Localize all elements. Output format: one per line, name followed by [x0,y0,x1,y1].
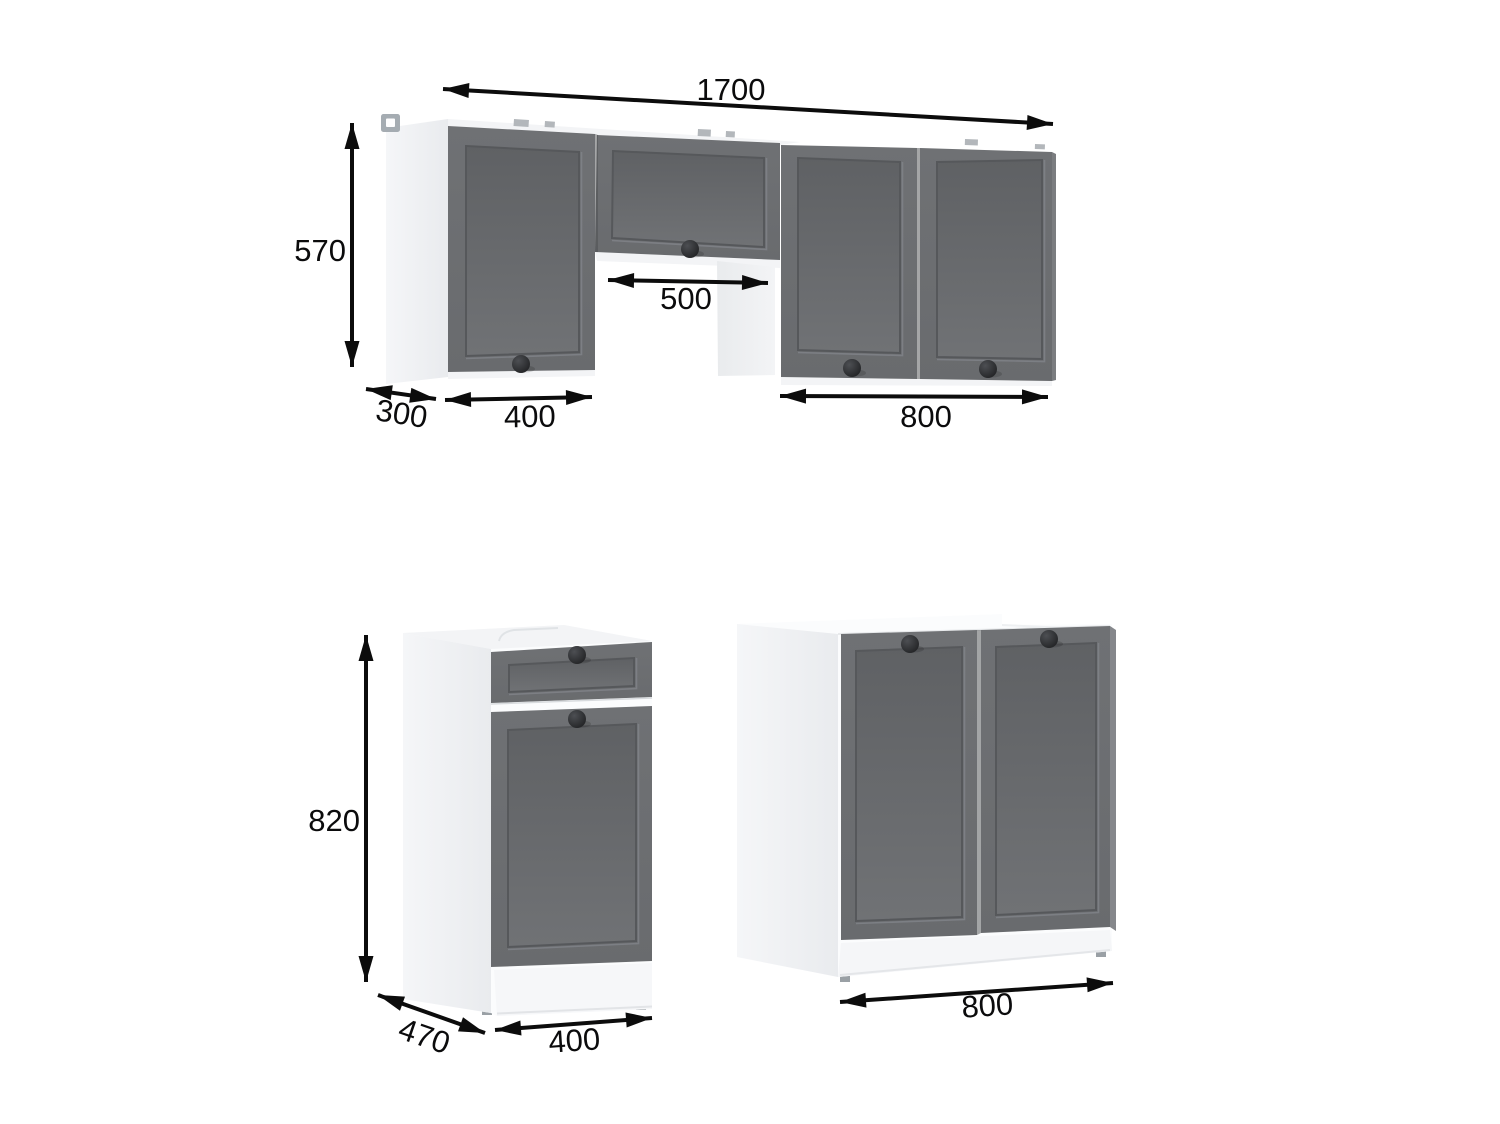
sink-door-left [841,630,977,940]
base-cabinet-left [403,625,652,1016]
wall-cabinet-run [381,114,1056,386]
hinge-tab-icon [545,121,555,128]
dim-base-left-width: 400 [495,1018,652,1060]
dim-wall-depth: 300 [366,389,436,435]
wall-right-side-edge [1052,152,1056,381]
dim-label-800-base: 800 [960,986,1014,1025]
dim-label-820: 820 [308,803,360,838]
door-seam [595,134,598,252]
wall-right-door-right [920,148,1052,381]
wall-right-door-left [781,145,917,379]
hinge-tab-icon [1035,144,1045,149]
dim-label-570: 570 [294,233,346,268]
dim-wall-total-width: 1700 [443,72,1053,124]
base-left-door [491,706,652,967]
base-left-drawer-front [491,642,652,703]
sink-door-right [981,626,1110,933]
dim-label-800-upper: 800 [900,399,952,434]
wall-left-door [448,126,595,373]
sink-base-cabinet [737,614,1116,982]
diagram-stage: 1700 570 300 400 500 800 820 [0,0,1500,1124]
sink-right-side-edge [1110,626,1116,931]
dim-label-400-upper: 400 [504,399,556,435]
base-left-gable [403,633,491,1013]
hinge-tab-icon [726,131,735,137]
hinge-tab-icon [698,129,711,137]
dim-wall-left-width: 400 [445,397,592,434]
dim-sink-width: 800 [840,983,1113,1025]
wall-left-gable [386,119,448,384]
dim-wall-right-width: 800 [780,396,1048,434]
door-seam [977,630,981,935]
dim-label-1700: 1700 [697,72,766,107]
hood-gap-side-panel [717,261,775,376]
hinge-tab-icon [965,139,978,145]
dim-base-height: 820 [308,635,366,982]
door-seam [917,148,920,379]
dim-label-300: 300 [373,392,430,435]
dim-label-500: 500 [660,281,712,316]
hinge-tab-icon [514,119,529,127]
dim-label-400-base: 400 [547,1021,601,1060]
dim-wall-height: 570 [294,123,352,367]
cabinet-dimension-diagram: 1700 570 300 400 500 800 820 [0,0,1500,1124]
sink-left-gable [737,624,838,977]
wall-bracket-icon [381,114,400,132]
hood-cabinet-door [595,135,780,260]
